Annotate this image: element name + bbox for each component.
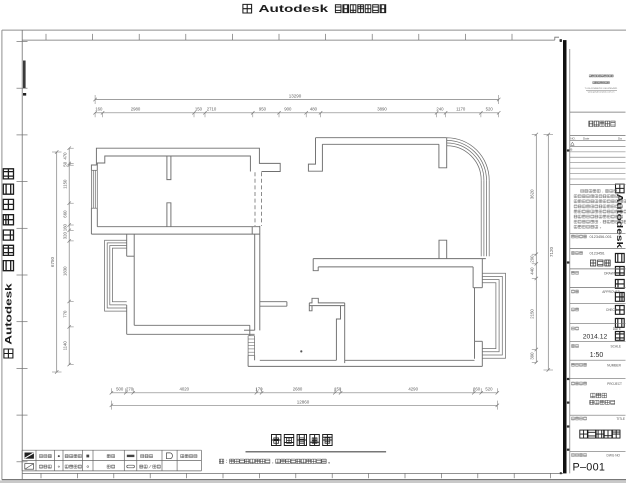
svg-text:APPROVED: APPROVED (602, 290, 620, 294)
svg-text:12860: 12860 (297, 399, 310, 404)
svg-text:950: 950 (259, 107, 267, 112)
svg-text:7120: 7120 (549, 246, 554, 257)
svg-text:B: B (570, 148, 572, 152)
svg-text:150: 150 (334, 387, 342, 392)
svg-text:2014.12: 2014.12 (583, 334, 608, 341)
svg-text:PROJECT: PROJECT (607, 382, 622, 386)
svg-text:270: 270 (126, 387, 134, 392)
svg-text:770: 770 (63, 310, 68, 318)
svg-text:DATE: DATE (613, 327, 621, 331)
svg-text:500: 500 (116, 387, 124, 392)
svg-text:4020: 4020 (180, 387, 190, 392)
svg-text:4290: 4290 (408, 387, 418, 392)
svg-text:2710: 2710 (207, 107, 217, 112)
svg-text:470: 470 (63, 152, 68, 160)
svg-text:Da: Da (618, 136, 622, 140)
svg-text:P–001: P–001 (573, 461, 606, 473)
svg-text:290: 290 (530, 255, 535, 263)
svg-text:T 010-12345678 F 010-87654321: T 010-12345678 F 010-87654321 (585, 88, 618, 90)
svg-text:DRAWN: DRAWN (604, 272, 617, 276)
svg-text:0123456-001: 0123456-001 (590, 235, 612, 239)
svg-text:520: 520 (486, 107, 494, 112)
svg-text:3890: 3890 (377, 107, 387, 112)
svg-text:240: 240 (436, 107, 444, 112)
svg-text:170: 170 (255, 387, 263, 392)
svg-text:SCALE: SCALE (611, 345, 621, 349)
svg-text:2150: 2150 (530, 309, 535, 319)
svg-text:480: 480 (310, 107, 318, 112)
svg-text:50: 50 (63, 161, 68, 166)
svg-text:1830: 1830 (63, 266, 68, 276)
svg-text:1150: 1150 (63, 179, 68, 189)
svg-text:Date: Date (583, 136, 590, 140)
svg-text:www.yzf-decoration.com.cn: www.yzf-decoration.com.cn (588, 91, 615, 94)
svg-text:0123456.: 0123456. (590, 252, 606, 256)
svg-text:390: 390 (530, 352, 535, 360)
svg-text:520: 520 (485, 387, 493, 392)
svg-text:Autodesk: Autodesk (5, 283, 14, 345)
svg-text:440: 440 (530, 267, 535, 275)
svg-text:1140: 1140 (63, 341, 68, 351)
svg-text:2680: 2680 (293, 387, 303, 392)
svg-text:CHECK: CHECK (606, 308, 618, 312)
svg-text:3620: 3620 (530, 189, 535, 199)
svg-text:Autodesk: Autodesk (259, 3, 330, 15)
svg-text:DWG NO: DWG NO (607, 454, 621, 458)
svg-text:NUMBER: NUMBER (607, 364, 622, 368)
svg-text:320: 320 (63, 232, 68, 240)
svg-text:160: 160 (63, 224, 68, 232)
svg-text:1170: 1170 (456, 107, 466, 112)
svg-text:2980: 2980 (131, 107, 141, 112)
svg-text:TITLE: TITLE (616, 417, 625, 421)
svg-text:900: 900 (284, 107, 292, 112)
svg-text:13290: 13290 (289, 94, 302, 99)
svg-text:NO.: NO. (570, 136, 576, 140)
svg-text:260: 260 (473, 387, 481, 392)
svg-text:6750: 6750 (50, 256, 55, 267)
svg-text:1:50: 1:50 (590, 352, 604, 359)
svg-text:660: 660 (63, 210, 68, 218)
svg-text:160: 160 (95, 107, 103, 112)
svg-text:150: 150 (195, 107, 203, 112)
